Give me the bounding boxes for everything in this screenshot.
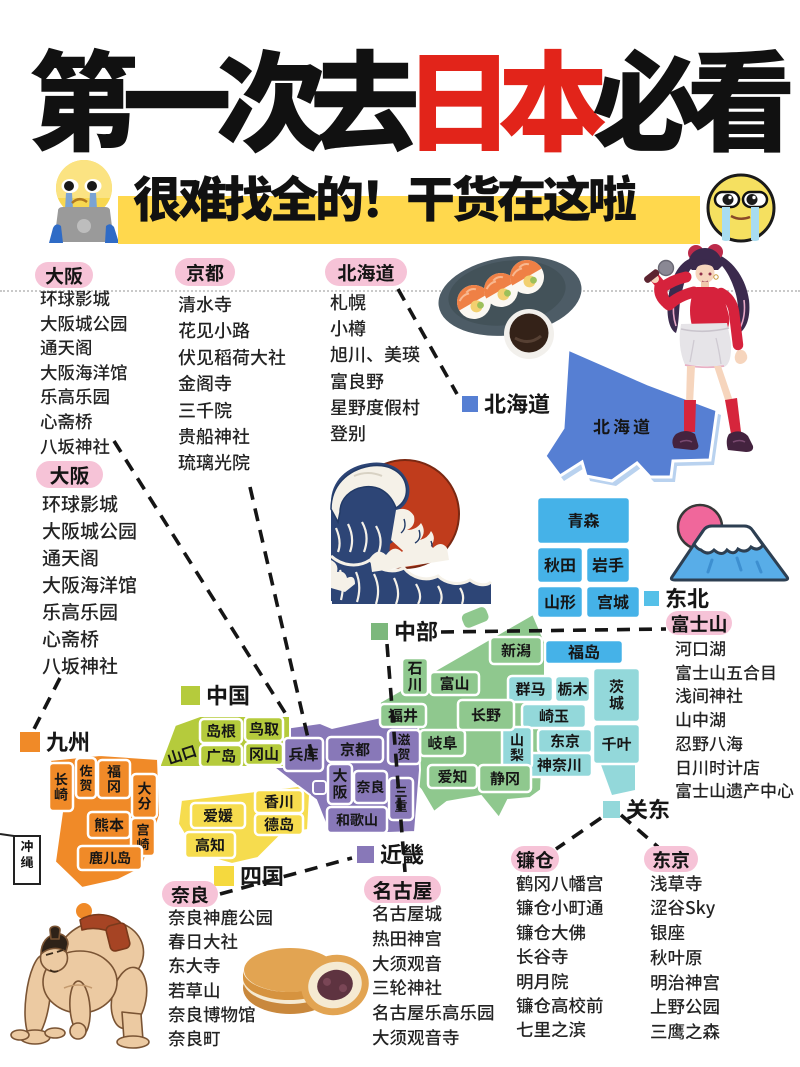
svg-text:宫城: 宫城 [597, 589, 629, 613]
svg-text:千叶: 千叶 [601, 733, 631, 754]
svg-text:熊本: 熊本 [94, 814, 124, 835]
svg-text:关东: 关东 [626, 792, 670, 824]
svg-text:四国: 四国 [240, 859, 284, 891]
svg-text:城: 城 [609, 693, 624, 714]
svg-text:长野: 长野 [471, 704, 501, 725]
svg-text:富山: 富山 [439, 673, 469, 694]
svg-text:福岛: 福岛 [568, 639, 600, 663]
svg-text:奈良: 奈良 [357, 777, 385, 797]
svg-text:崎玉: 崎玉 [539, 705, 569, 726]
svg-text:群马: 群马 [515, 678, 545, 699]
svg-text:京都: 京都 [340, 739, 370, 760]
svg-text:分: 分 [138, 794, 152, 814]
svg-text:德岛: 德岛 [264, 814, 294, 835]
svg-text:静冈: 静冈 [490, 768, 520, 789]
svg-text:秋田: 秋田 [544, 552, 576, 576]
svg-text:爱媛: 爱媛 [203, 805, 233, 826]
svg-text:中国: 中国 [206, 678, 250, 710]
svg-text:崎: 崎 [54, 785, 68, 805]
svg-text:和歌山: 和歌山 [336, 810, 378, 830]
svg-text:鸟取: 鸟取 [249, 718, 279, 739]
svg-text:北海道: 北海道 [593, 413, 653, 438]
svg-text:绳: 绳 [20, 852, 33, 871]
svg-text:新潟: 新潟 [501, 640, 531, 661]
svg-text:香川: 香川 [264, 791, 294, 812]
svg-text:中部: 中部 [394, 614, 438, 646]
svg-text:广岛: 广岛 [206, 745, 236, 766]
svg-text:近畿: 近畿 [380, 837, 424, 869]
svg-text:兵库: 兵库 [288, 744, 318, 765]
svg-text:岛根: 岛根 [206, 720, 236, 741]
svg-text:栃木: 栃木 [557, 678, 587, 699]
svg-text:北海道: 北海道 [484, 387, 550, 419]
svg-text:岩手: 岩手 [592, 552, 624, 576]
svg-text:青森: 青森 [567, 507, 599, 531]
svg-text:神奈川: 神奈川 [537, 754, 582, 775]
svg-text:高知: 高知 [195, 834, 225, 855]
svg-text:爱知: 爱知 [437, 766, 467, 787]
svg-text:梨: 梨 [510, 745, 524, 765]
svg-text:山形: 山形 [544, 589, 576, 613]
svg-text:岐阜: 岐阜 [427, 732, 457, 753]
svg-text:九州: 九州 [46, 725, 90, 757]
svg-text:东京: 东京 [550, 730, 580, 751]
svg-text:阪: 阪 [332, 782, 347, 803]
svg-text:贺: 贺 [397, 744, 410, 763]
svg-text:贺: 贺 [79, 775, 92, 794]
svg-text:冈山: 冈山 [249, 743, 279, 764]
svg-text:冈: 冈 [107, 777, 121, 797]
svg-text:鹿儿岛: 鹿儿岛 [89, 848, 131, 868]
svg-text:川: 川 [407, 674, 422, 695]
